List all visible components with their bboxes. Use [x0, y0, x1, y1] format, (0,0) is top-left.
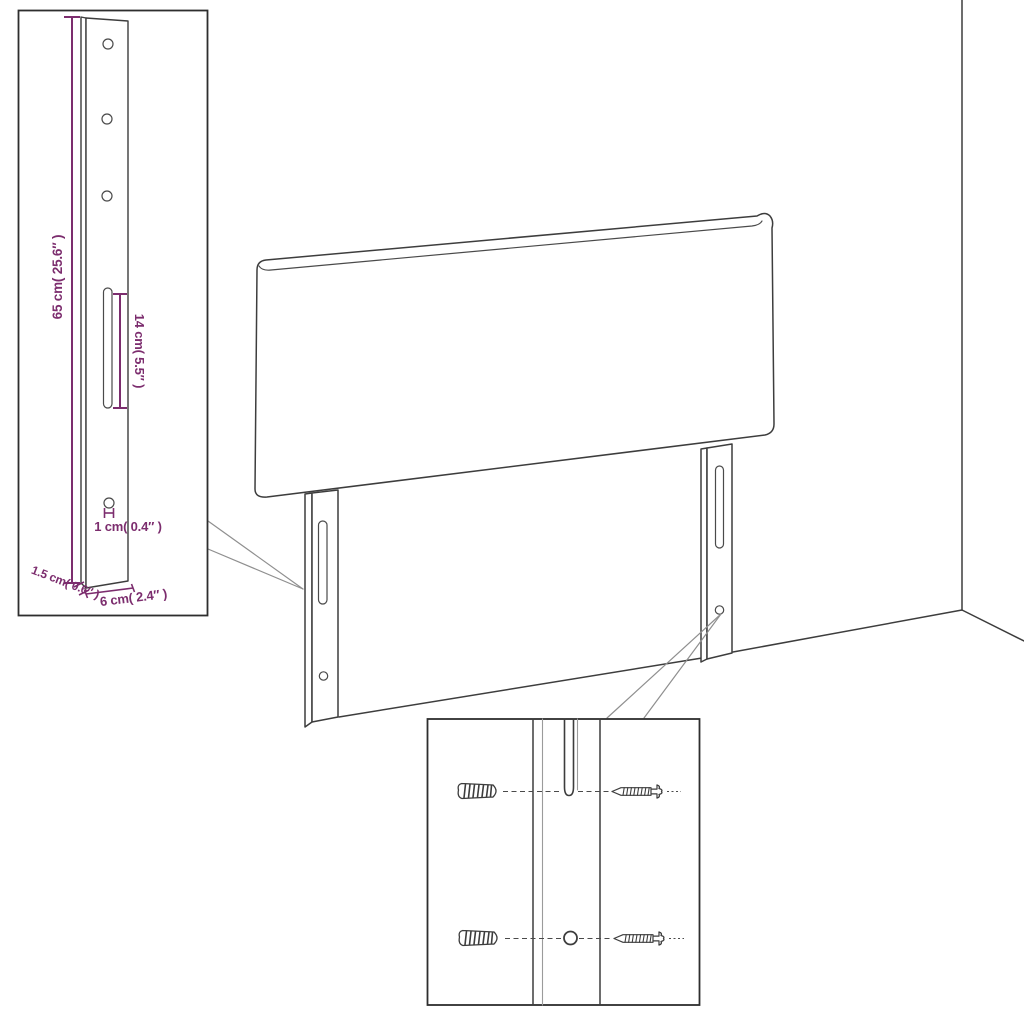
right-leg-front-face: [707, 444, 732, 659]
callout-line: [607, 614, 721, 718]
right-leg: [701, 444, 732, 662]
hardware-inset-border: [428, 719, 700, 1005]
callout-lines-bracket: [208, 521, 303, 589]
left-leg-side-face: [305, 493, 312, 727]
dimension-label-slot: 14 cm( 5.5″ ): [132, 314, 147, 388]
left-leg: [305, 490, 338, 727]
diagram-canvas: 65 cm( 25.6″ ) 14 cm( 5.5″ ) 1 cm( 0.4″ …: [0, 0, 1024, 1024]
callout-lines-hardware: [607, 614, 721, 718]
dimension-label-height: 65 cm( 25.6″ ): [50, 235, 65, 320]
floor-line-corner-right: [962, 610, 1024, 641]
headboard-panel: [255, 214, 774, 498]
floor-line-right: [733, 610, 962, 652]
left-leg-front-face: [312, 490, 338, 722]
product-diagram: 65 cm( 25.6″ ) 14 cm( 5.5″ ) 1 cm( 0.4″ …: [0, 0, 1024, 1024]
floor-line-left: [339, 658, 702, 717]
bracket-front-face: [86, 18, 128, 588]
bracket-detail-inset: 65 cm( 25.6″ ) 14 cm( 5.5″ ) 1 cm( 0.4″ …: [19, 11, 208, 616]
dimension-label-hole: 1 cm( 0.4″ ): [94, 519, 161, 534]
headboard-outline: [255, 214, 774, 498]
hardware-detail-inset: [428, 719, 700, 1005]
bracket-side-face: [81, 17, 86, 588]
